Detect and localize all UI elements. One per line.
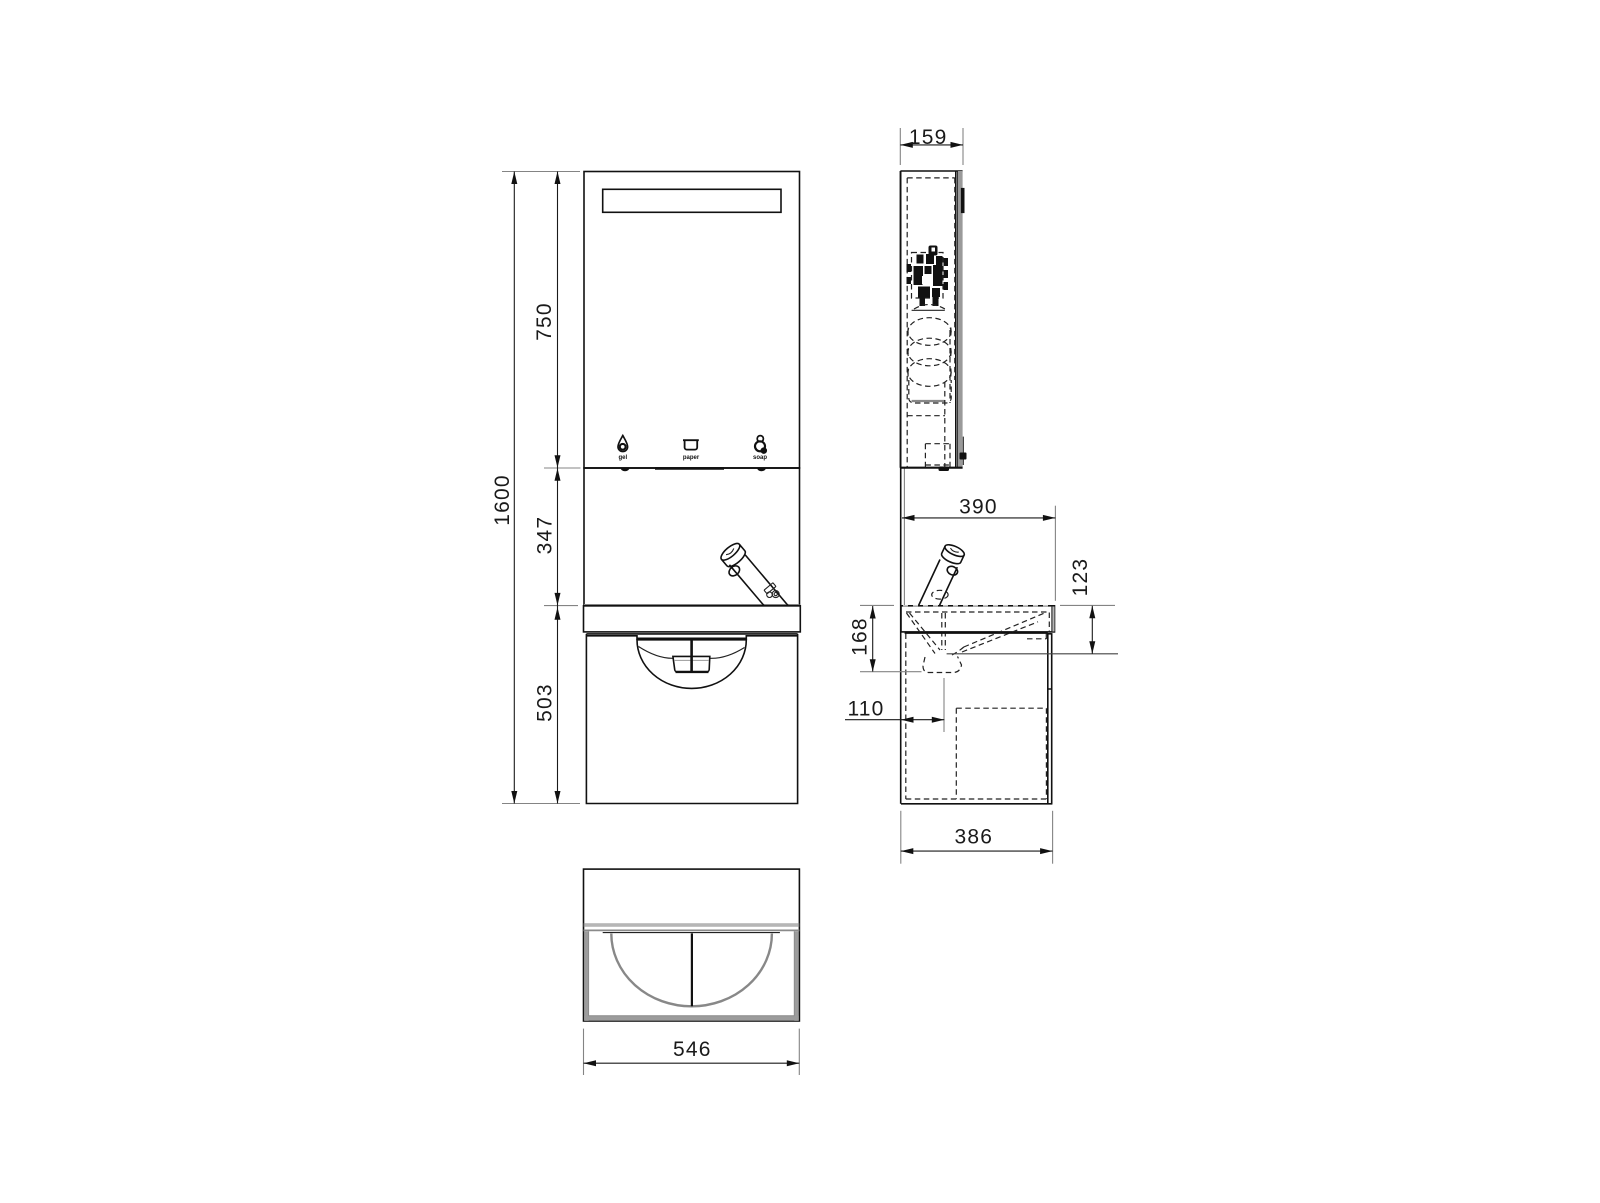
svg-text:110: 110	[847, 698, 884, 721]
svg-text:546: 546	[673, 1038, 712, 1061]
svg-text:paper: paper	[683, 455, 700, 461]
svg-text:750: 750	[533, 302, 556, 341]
svg-text:159: 159	[909, 126, 948, 149]
svg-text:1600: 1600	[491, 474, 514, 526]
svg-text:gel: gel	[618, 455, 627, 461]
svg-text:soap: soap	[753, 455, 767, 461]
svg-text:168: 168	[849, 617, 872, 656]
svg-text:503: 503	[533, 683, 556, 722]
svg-text:123: 123	[1069, 558, 1092, 597]
svg-text:347: 347	[533, 516, 556, 555]
svg-text:386: 386	[954, 826, 993, 849]
svg-text:390: 390	[959, 496, 998, 519]
